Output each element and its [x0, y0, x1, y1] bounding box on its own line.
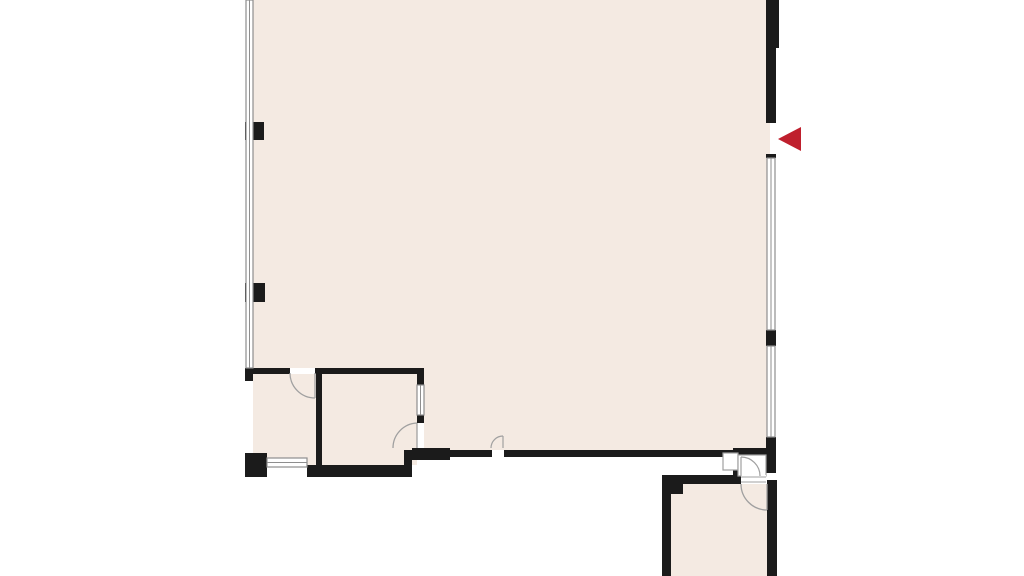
entry-arrow-marker[interactable] [778, 127, 801, 151]
wall-bottom-right-room-top [662, 475, 741, 484]
room-bottom-left-1-floor [253, 370, 316, 465]
wall-corner-block-bottom-left [245, 453, 267, 477]
wall-room2-corner-top [417, 368, 424, 385]
wall-bottom-band-left [307, 465, 407, 477]
wall-right-top [766, 48, 776, 123]
wall-right-window-cap [766, 154, 776, 158]
wall-right-top-outer [766, 0, 779, 48]
wall-rooms-top-right [315, 368, 418, 374]
wall-right-mid [766, 437, 776, 473]
room-bottom-right-floor [671, 484, 769, 576]
wall-rooms-top-left [247, 368, 290, 374]
exit-door-cell [738, 455, 766, 476]
door-gap-room2-right [417, 423, 424, 448]
wall-rooms-divider [316, 374, 322, 465]
floorplan-canvas [0, 0, 1024, 576]
room-bottom-left-2-floor [322, 370, 417, 465]
wall-bottom-main-right [504, 450, 733, 457]
wall-bottom-right-room-left [662, 475, 671, 576]
door-gap-bottom-right-room [741, 475, 766, 484]
door-gap-room1-top [290, 368, 315, 374]
door-gap-small-bottom [492, 450, 504, 457]
wall-left-junction-block [245, 368, 253, 381]
wall-right-mullion [766, 330, 776, 346]
wall-bottom-right-room-notch [671, 484, 683, 494]
exit-door-sidelight [723, 453, 738, 470]
wall-room2-mullion [417, 415, 424, 424]
floorplan-drawing [0, 0, 1024, 576]
wall-corner-chunk [412, 448, 450, 460]
wall-right-bottom [767, 480, 777, 576]
